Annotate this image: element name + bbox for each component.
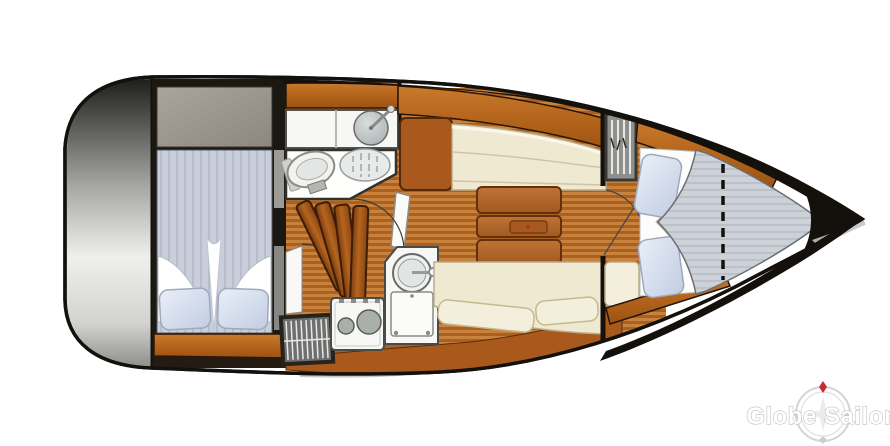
floorplan-canvas: Globe Sailor [0, 0, 890, 446]
watermark-text: Globe Sailor [746, 403, 890, 430]
vanity-faucet-knob [388, 106, 395, 113]
aft-pillow-left [159, 288, 211, 331]
salon-table [477, 187, 561, 264]
galley-sink-unit [385, 247, 438, 344]
port-cabinet [400, 118, 452, 190]
watermark: Globe Sailor [746, 381, 890, 444]
shower-grate [340, 149, 390, 181]
aft-shelf [154, 334, 286, 358]
steps-side-panel [286, 246, 302, 314]
aft-floor-strip [154, 357, 286, 368]
compass-north-marker [819, 381, 827, 393]
boat-floorplan: Globe Sailor [0, 0, 890, 446]
hanging-locker [606, 114, 636, 180]
interior [67, 78, 860, 378]
icebox-locker [281, 315, 333, 365]
galley-cabinet-door [391, 292, 433, 336]
aft-wall-sliver-top [274, 150, 284, 208]
vanity-drain [369, 126, 373, 130]
transom-platform [67, 79, 152, 367]
starboard-back-cushion-right [535, 296, 599, 325]
aft-cabin-locker [157, 87, 272, 147]
galley-stove [331, 298, 384, 350]
stove-burner-large [357, 310, 381, 334]
galley-faucet [412, 271, 429, 274]
head-top-locker [286, 82, 398, 108]
stove-burner-small [338, 318, 354, 334]
table-latch-dot [526, 225, 530, 229]
aft-pillow-right [217, 288, 268, 330]
